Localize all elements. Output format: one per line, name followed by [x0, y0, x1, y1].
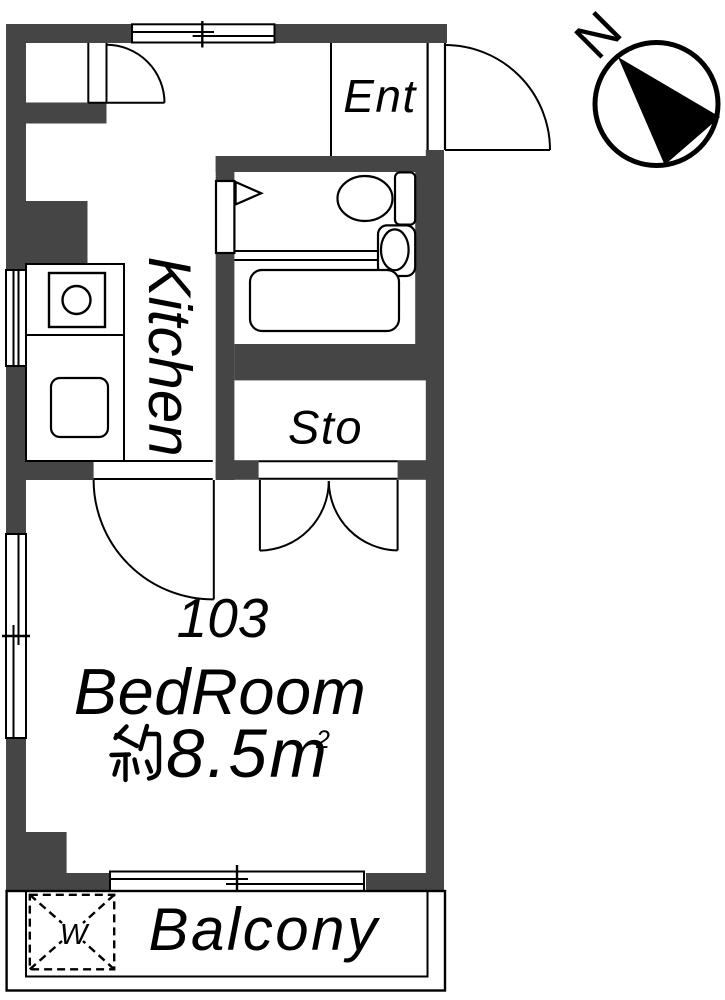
svg-text:W: W — [60, 919, 90, 951]
svg-text:Ent: Ent — [343, 70, 417, 122]
svg-text:Balcony: Balcony — [149, 896, 381, 963]
svg-text:2: 2 — [315, 726, 330, 754]
svg-text:103: 103 — [177, 587, 269, 649]
svg-text:8.5m: 8.5m — [166, 715, 329, 792]
svg-text:Kitchen: Kitchen — [136, 256, 203, 456]
svg-text:Sto: Sto — [288, 401, 363, 454]
